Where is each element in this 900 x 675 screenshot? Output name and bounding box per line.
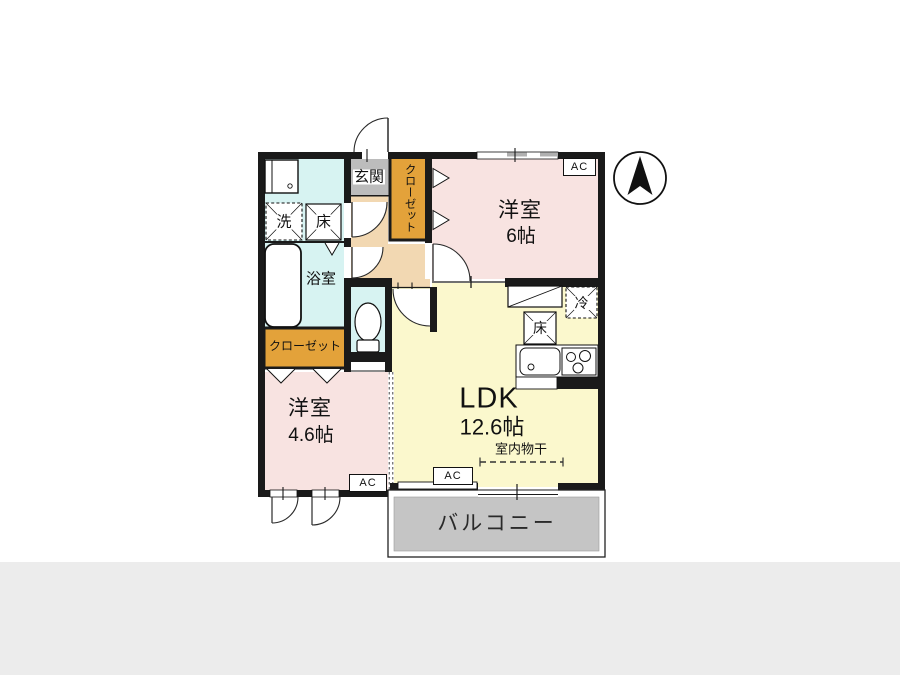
- wall-closet-room6: [425, 152, 432, 243]
- wall-left: [258, 152, 265, 497]
- entrance-floor: [351, 159, 390, 196]
- entrance-door-arc: [354, 118, 388, 152]
- closet-lower-box: [264, 328, 347, 368]
- ac-ldk-badge: AC: [433, 467, 473, 485]
- opening-washroom-door: [344, 203, 351, 238]
- wall-toilet-bottom: [351, 352, 385, 362]
- wall-toilet-top: [344, 278, 392, 287]
- ac-upper-badge: AC: [563, 158, 596, 176]
- western-room-46-floor: [265, 372, 388, 490]
- floor-plan-drawing: [0, 0, 900, 675]
- stove-burner-3: [573, 363, 583, 373]
- vanity-unit: [265, 160, 298, 193]
- stove-burner-2: [580, 351, 591, 362]
- kitchen-counter-end: [516, 377, 557, 389]
- opening-entrance: [362, 152, 388, 159]
- balcony-deck: [394, 497, 599, 551]
- kitchen-sink: [520, 348, 560, 375]
- opening-toilet-door: [351, 362, 385, 371]
- hallway-floor-b: [388, 244, 430, 287]
- wall-ldk-bottom-right: [558, 483, 598, 490]
- sliding-door-balcony: [478, 487, 558, 497]
- sink-drain: [528, 364, 534, 370]
- window-room46-arc-2: [312, 497, 340, 525]
- ac-lower-badge: AC: [349, 474, 387, 492]
- window-room6-gray-1: [507, 153, 527, 157]
- toilet-tank: [357, 340, 379, 352]
- wall-stub-ldk: [430, 287, 437, 332]
- floor-plan-page: 玄関 クローゼット クローゼット 洗 床 浴室 洋室 6帖 洋室 4.6帖 LD…: [0, 0, 900, 675]
- opening-bath-door: [344, 247, 351, 278]
- entrance-step-line: [351, 195, 390, 197]
- vanity-knob: [288, 184, 292, 188]
- bathtub: [265, 244, 301, 327]
- window-room6-gray-2: [540, 153, 558, 157]
- north-compass-icon: [614, 152, 666, 204]
- stove-burner-1: [567, 353, 576, 362]
- window-room46-arc-1: [272, 497, 298, 523]
- wall-washroom-bath-divider: [265, 241, 344, 243]
- toilet-fixture: [355, 303, 381, 352]
- wall-toilet-right: [385, 287, 392, 372]
- opening-room6-door: [425, 243, 432, 279]
- closet-upper-box: [390, 155, 428, 240]
- page-bottom-band: [0, 562, 900, 675]
- wall-right: [598, 152, 605, 497]
- toilet-door-sill: [351, 371, 385, 372]
- toilet-bowl: [355, 303, 381, 341]
- wall-kitchen-stub: [557, 377, 598, 389]
